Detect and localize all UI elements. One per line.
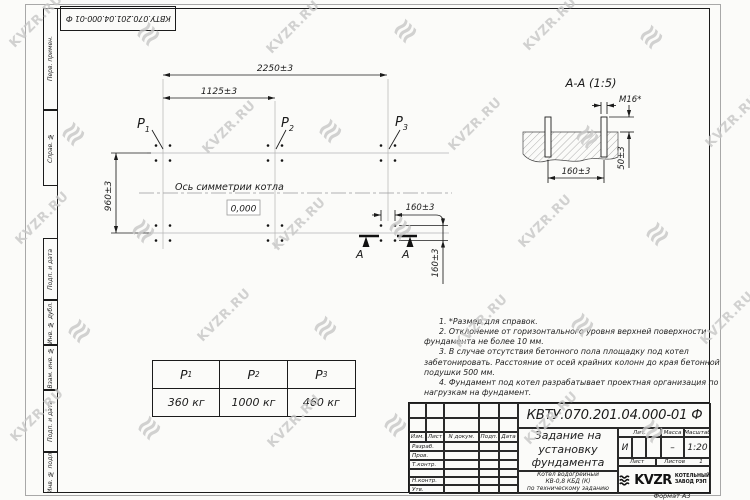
plan-construction-lines [147,79,449,249]
dim-bolt-thread: М16* [619,95,641,105]
level-mark-value: 0,000 [231,205,257,215]
load-point-p1-label: P1 [137,117,150,134]
dim-overall-length: 2250±3 [257,64,293,74]
load-point-p3-label: P3 [395,115,408,132]
dim-bolt-spacing-v: 160±3 [431,249,441,278]
load-point-p2-label: P2 [281,116,294,133]
drawing-sheet: Перв. примен. Справ. № Подп. и дата Инв.… [0,0,750,500]
section-letter-left: А [355,248,364,261]
plan-dimension-lines [111,75,448,284]
section-view-title: А-А (1:5) [564,76,616,90]
dim-bolt-spacing-h: 160±3 [406,203,435,213]
symmetry-axis-label: Ось симметрии котла [175,182,284,193]
dim-bolt-protrusion: 50±3 [617,146,627,169]
dim-section-bolt-spacing: 160±3 [562,167,591,177]
section-cut-marks [359,236,417,247]
section-letter-right: А [401,248,410,261]
drawing-canvas: 2250±3 1125±3 960±3 P1 P2 P3 Ось симметр… [0,0,750,500]
dim-half-length: 1125±3 [201,87,237,97]
dim-width: 960±3 [104,181,114,212]
